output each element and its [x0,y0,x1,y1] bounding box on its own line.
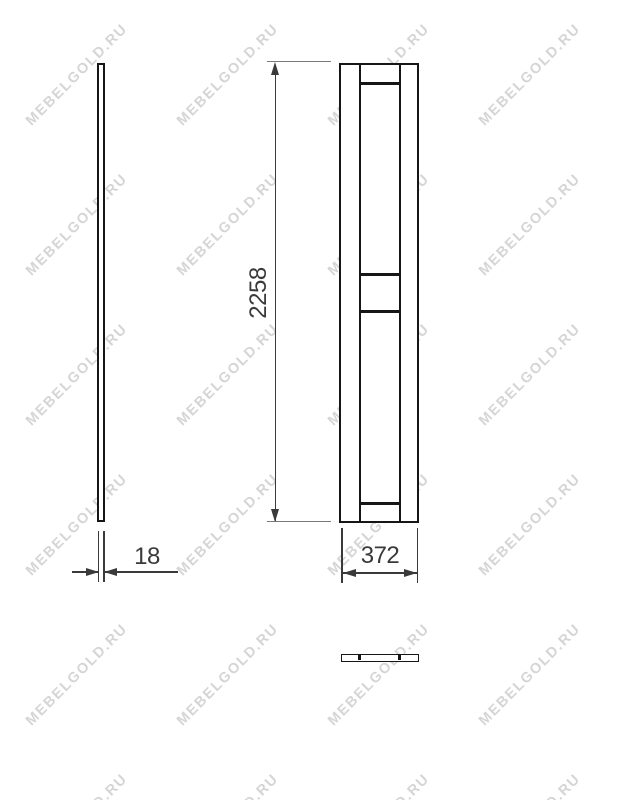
thickness-dim-label: 18 [134,543,160,571]
bottom-rail-line [359,502,401,505]
height-dim-arrow-top [271,62,279,75]
side-view-panel [97,63,105,522]
middle-rail-bottom-line [359,310,401,313]
height-dim-line [275,65,276,521]
width-dim-arrow-right [404,569,417,577]
bottom-view-divider-left [358,655,361,660]
middle-rail-top-line [359,273,401,276]
top-rail-line [359,82,401,85]
width-dim-label: 372 [361,542,400,570]
front-view-inner-edge-left [359,65,361,521]
thickness-dim-arrow-right [104,568,117,576]
front-view-panel [339,63,419,523]
height-dim-arrow-bottom [271,509,279,522]
front-view-inner-edge-right [399,65,401,521]
bottom-view-panel [341,654,419,662]
thickness-dim-arrow-left [86,568,99,576]
height-dim-label: 2258 [245,267,273,318]
bottom-view-divider-right [398,655,401,660]
width-dim-arrow-left [343,569,356,577]
drawing-layer: 2258 18 372 [0,0,628,800]
drawing-canvas: MEBELGOLD.RUMEBELGOLD.RUMEBELGOLD.RUMEBE… [0,0,628,800]
